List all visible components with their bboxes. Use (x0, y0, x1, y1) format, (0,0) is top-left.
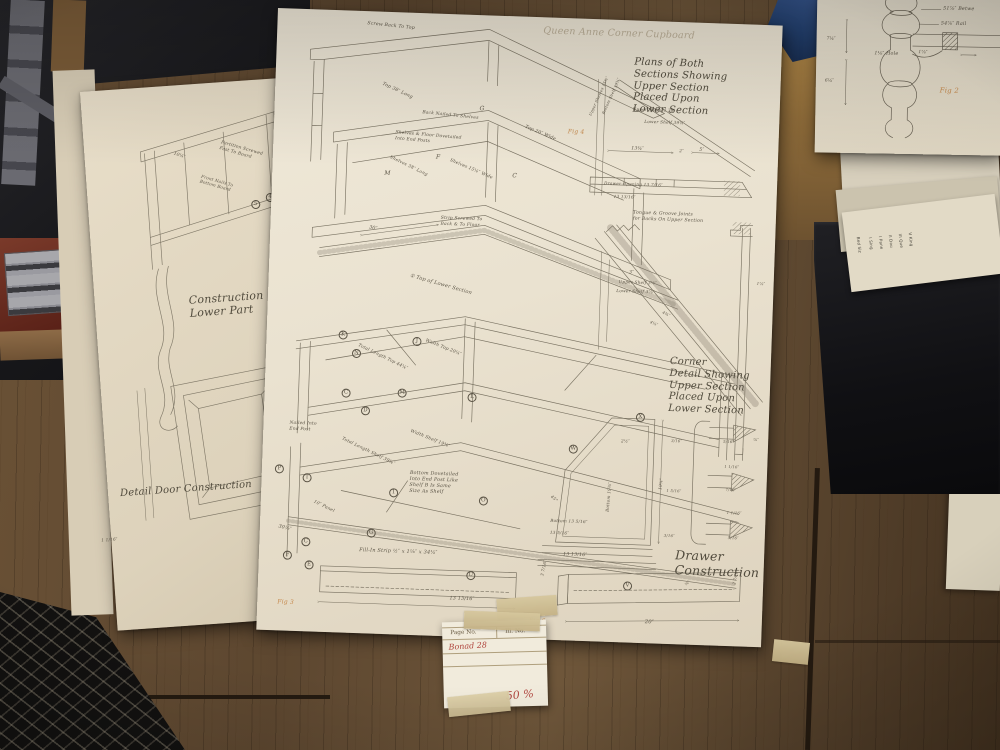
annotation-text: W (569, 444, 578, 453)
annotation-text: N (352, 349, 361, 358)
annotation-text: 10¼″ (173, 152, 186, 161)
annotation-text: Nailed Into End Post (289, 421, 317, 433)
annotation-text: ⅝″ (684, 580, 691, 587)
main-sheet-annotations: Queen Anne Corner CupboardScrew Back To … (256, 8, 782, 647)
annotation-text: C (512, 172, 517, 180)
annotation-text: K (338, 330, 347, 339)
annotation-text: V King (908, 232, 915, 247)
annotation-text: 1 5/16″ (666, 489, 681, 494)
annotation-text: 20″ (645, 619, 654, 626)
annotation-text: Shelves & Floor Dovetailed Into End Post… (395, 130, 462, 147)
annotation-text: Shelves 38″ Long (389, 155, 429, 178)
annotation-text: 4⅛″ (649, 319, 659, 327)
annotation-text: 1 1/16″ (101, 536, 118, 542)
annotation-text: Shelves 15¼″ Wide (449, 158, 494, 181)
annotation-text: 1⅛″ Hole (874, 51, 898, 57)
annotation-text: F (283, 551, 292, 560)
annotation-text: 5/16″ (723, 440, 734, 445)
annotation-text: Width Shelf 19⅜″ (409, 429, 450, 450)
annotation-text: Drawer Construction (674, 548, 760, 580)
annotation-text: X (636, 413, 645, 422)
annotation-text: ⅞″ (753, 437, 759, 442)
annotation-text: 13 13/16″ (614, 194, 636, 200)
annotation-text: V (623, 581, 632, 590)
annotation-text: Bottom Dovetailed Into End Post Like She… (409, 471, 458, 497)
annotation-text: 1⅞″ (918, 50, 927, 56)
annotation-text: 13¾″ (631, 146, 644, 152)
annotation-text: M (384, 170, 391, 178)
annotation-text: Fig 3 (277, 598, 294, 606)
annotation-text: 51⅞″ Betwe (943, 7, 974, 14)
masking-tape (772, 639, 810, 665)
annotation-text: 3″ (629, 270, 634, 276)
table-plank-gap (815, 640, 1000, 643)
annotation-text: 13 5/16″ (550, 530, 569, 536)
annotation-text: D (361, 406, 370, 415)
annotation-text: 19¾″ (657, 478, 664, 490)
annotation-text: Total Length Shelf 39¾″ (341, 437, 396, 468)
annotation-text: L (467, 393, 476, 402)
annotation-text: Bottom 19⅜″ (605, 482, 613, 512)
annotation-text: Front Nails To Bottom Board (199, 174, 234, 193)
annotation-text: III Que (898, 233, 905, 248)
annotation-text: Fig 2 (940, 87, 959, 96)
annotation-text: Lower Shelf 3⅞″ (616, 288, 654, 295)
annotation-text: M (397, 388, 406, 397)
annotation-text: 7¼″ (827, 37, 836, 43)
annotation-text: T (302, 473, 311, 482)
annotation-text: 4¾″ (662, 310, 672, 318)
annotation-text: 30″ (368, 225, 378, 233)
annotation-text: E (304, 560, 313, 569)
tag-empty-row (443, 652, 547, 668)
annotation-text: C (301, 537, 310, 546)
annotation-text: 1 (389, 488, 398, 497)
masking-tape (464, 611, 541, 632)
annotation-text: 5/16″ (728, 536, 739, 541)
annotation-text: 5″ (699, 148, 704, 154)
annotation-text: G (479, 105, 484, 113)
annotation-text: 45° (550, 494, 559, 503)
top-right-drawing-sheet: 51⅞″ Betwe54⅞″ Rail1⅛″ Hole1⅞″7¼″6¼″Fig … (815, 0, 1000, 156)
wood-post (51, 0, 86, 73)
annotation-text: 5 (251, 200, 261, 210)
annotation-text: 3/16″ (671, 439, 682, 444)
annotation-text: 13 13/16″ (449, 596, 474, 603)
annotation-text: Top 38″ Long (381, 82, 413, 101)
annotation-text: Fig 4 (568, 128, 585, 136)
annotation-text: 7/16″ (725, 488, 736, 493)
annotation-text: I Sing (868, 237, 874, 250)
annotation-text: 30⅛″ (278, 524, 292, 533)
annotation-text: Bed Siz (856, 237, 863, 254)
annotation-text: I Pane (878, 236, 885, 250)
annotation-text: P (275, 464, 284, 473)
top-right-annotations: 51⅞″ Betwe54⅞″ Rail1⅛″ Hole1⅞″7¼″6¼″Fig … (815, 0, 1000, 156)
annotation-text: 6¼″ (825, 79, 834, 85)
annotation-text: F (436, 154, 441, 162)
annotation-text: 13 13/16″ (563, 552, 587, 559)
annotation-text: Total Length Top 44¼″ (357, 343, 409, 372)
annotation-text: C (341, 388, 350, 397)
annotation-text: J (412, 337, 421, 346)
annotation-text: Construction Lower Part (188, 290, 264, 321)
annotation-text: Queen Anne Corner Cupboard (543, 25, 695, 42)
annotation-text: Fill-In Strip ½″ x 1⅛″ x 34¼″ (359, 547, 438, 556)
annotation-text: Upper Shelf 3¼″ (619, 279, 657, 286)
annotation-text: Strip Screwed To Back & To Floor (440, 216, 482, 228)
annotation-text: Drawer Opening 13 7/16″ (604, 180, 663, 187)
annotation-text: 3/16″ (664, 534, 675, 539)
annotation-text: 10″ Panel (312, 500, 335, 515)
annotation-text: Lower Shelf 39¼″ (644, 119, 685, 126)
annotation-text: 54⅞″ Rail (941, 22, 967, 28)
annotation-text: Back Nailed To Shelves (422, 110, 479, 121)
annotation-text: ① Top of Lower Section (409, 273, 472, 297)
annotation-text: Partition Screwed Fast To Board (219, 140, 264, 163)
annotation-text: Width Top 20¼″ (424, 338, 462, 357)
annotation-text: 2½″ (621, 438, 630, 444)
annotation-text: 2″ (679, 148, 684, 153)
annotation-text: G (367, 528, 376, 537)
annotation-text: Bottom 13 5/16″ (550, 518, 588, 525)
annotation-text: Tongue & Groove Joints for Backs On Uppe… (633, 211, 704, 225)
annotation-text: U (466, 571, 475, 580)
annotation-text: O (479, 496, 488, 505)
page-no-value: Bonad 28 (442, 638, 487, 654)
annotation-text: Detail Door Construction (120, 479, 253, 500)
annotation-text: 1 1/16″ (724, 465, 739, 470)
photo-of-drawing-sheets: Bed SizI SingI PaneII DouIII QueV King P… (0, 0, 1000, 750)
annotation-text: Corner Detail Showing Upper Section Plac… (668, 356, 750, 418)
annotation-text: 1 1/16″ (727, 511, 742, 516)
annotation-text: 1⅞″ (757, 281, 766, 286)
annotation-text: II Dou (888, 235, 895, 248)
annotation-text: Screw Back To Top (367, 21, 415, 32)
annotation-text: 3 7/16″ (539, 559, 548, 576)
main-drawing-sheet: Queen Anne Corner CupboardScrew Back To … (256, 8, 782, 647)
annotation-text: Top 20″ Wide (524, 125, 557, 143)
